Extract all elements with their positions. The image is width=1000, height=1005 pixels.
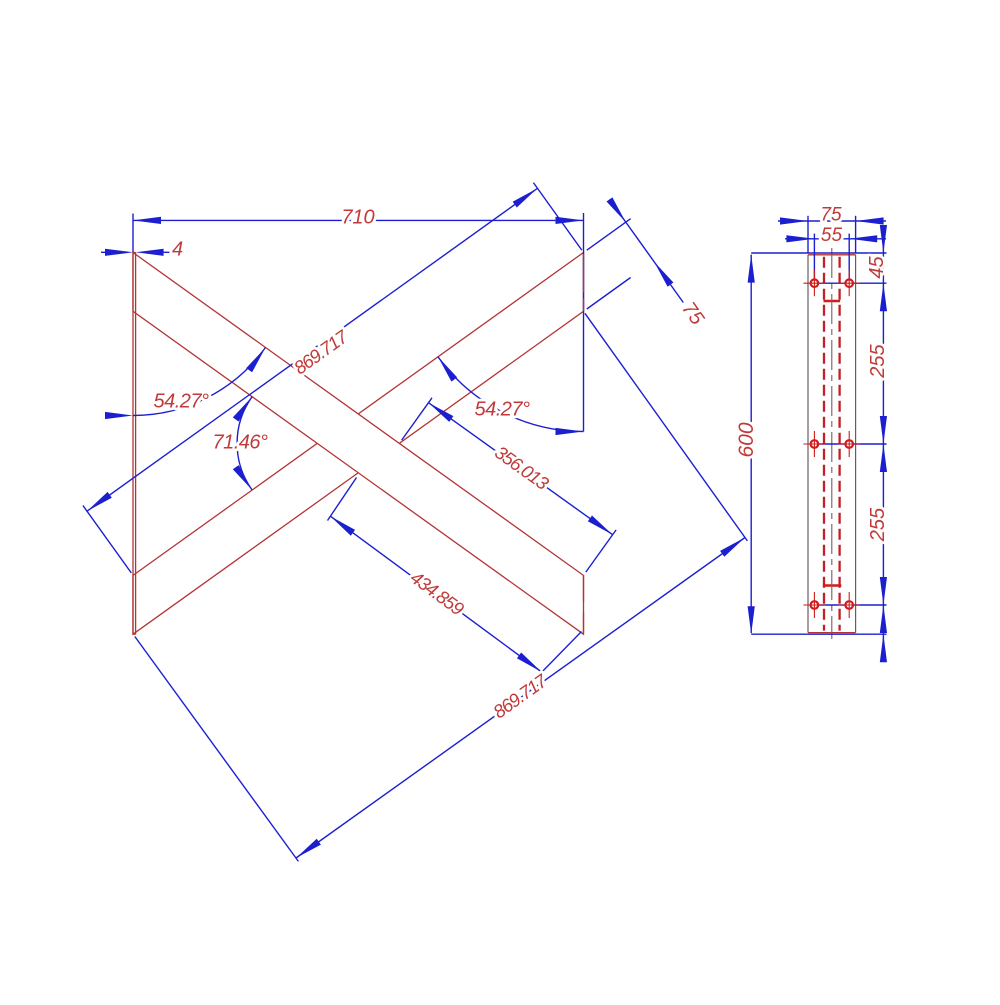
svg-text:75: 75 — [820, 205, 842, 226]
svg-text:55: 55 — [821, 225, 843, 246]
svg-text:255: 255 — [867, 343, 889, 378]
svg-text:54.27°: 54.27° — [153, 390, 209, 412]
svg-text:75: 75 — [677, 298, 708, 330]
svg-text:869.717: 869.717 — [290, 325, 352, 378]
svg-text:356.013: 356.013 — [491, 441, 553, 494]
svg-text:600: 600 — [735, 422, 758, 457]
svg-text:54.27°: 54.27° — [474, 398, 530, 420]
svg-text:710: 710 — [341, 206, 374, 228]
svg-text:45: 45 — [866, 256, 888, 279]
svg-text:4: 4 — [172, 238, 183, 260]
svg-text:869.717: 869.717 — [489, 669, 551, 722]
svg-text:255: 255 — [867, 507, 889, 542]
svg-text:71.46°: 71.46° — [212, 431, 268, 453]
svg-text:434.859: 434.859 — [407, 567, 468, 620]
